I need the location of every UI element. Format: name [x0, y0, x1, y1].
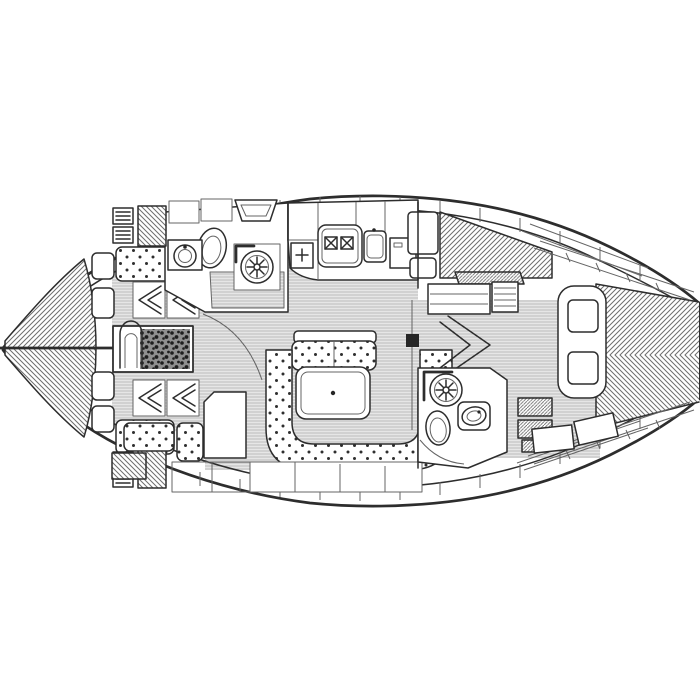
chart-table — [408, 212, 438, 254]
nav-seat — [410, 258, 436, 278]
anchor-locker-hatched — [138, 206, 166, 246]
mast-post — [406, 334, 419, 347]
v-berth — [0, 240, 114, 456]
deck-hatch — [235, 200, 277, 221]
aft-berth-pillow-panel — [558, 286, 606, 398]
nav-station — [408, 212, 438, 278]
floor-plan-drawing — [0, 0, 700, 700]
faucet-dot — [183, 245, 187, 249]
pillow-port — [568, 300, 598, 332]
two-burner-stove — [318, 225, 362, 267]
louver-vents-port — [113, 208, 133, 243]
saloon-table — [296, 367, 370, 419]
berth-lockers — [428, 282, 518, 314]
galley-sink — [364, 228, 386, 262]
galley — [288, 200, 418, 280]
cabinet-cross-door — [291, 243, 313, 268]
pillow-starboard — [568, 352, 598, 384]
vanity-dresser — [113, 321, 193, 372]
wardrobe-hanging-locker — [204, 392, 246, 458]
small-seat-dotted — [177, 423, 203, 461]
seat-chest-dotted — [124, 423, 174, 451]
vanity-dresser-top-detail — [140, 329, 190, 369]
washbasin — [168, 240, 202, 270]
aft-washbasin — [458, 402, 490, 430]
chest-hatched — [112, 453, 146, 479]
table-leg-dot — [331, 391, 335, 395]
v-berth-mattress-starboard — [0, 348, 100, 456]
shower-drain-rosette — [234, 244, 280, 290]
side-lockers-top — [169, 199, 232, 223]
aft-head — [418, 368, 507, 468]
aft-berth-chevron-bottom — [596, 355, 700, 460]
v-berth-mattress-port — [0, 240, 100, 348]
yacht-floor-plan — [0, 0, 700, 700]
port-aft-berth — [428, 212, 552, 314]
port-aft-berth-mattress — [440, 212, 552, 278]
